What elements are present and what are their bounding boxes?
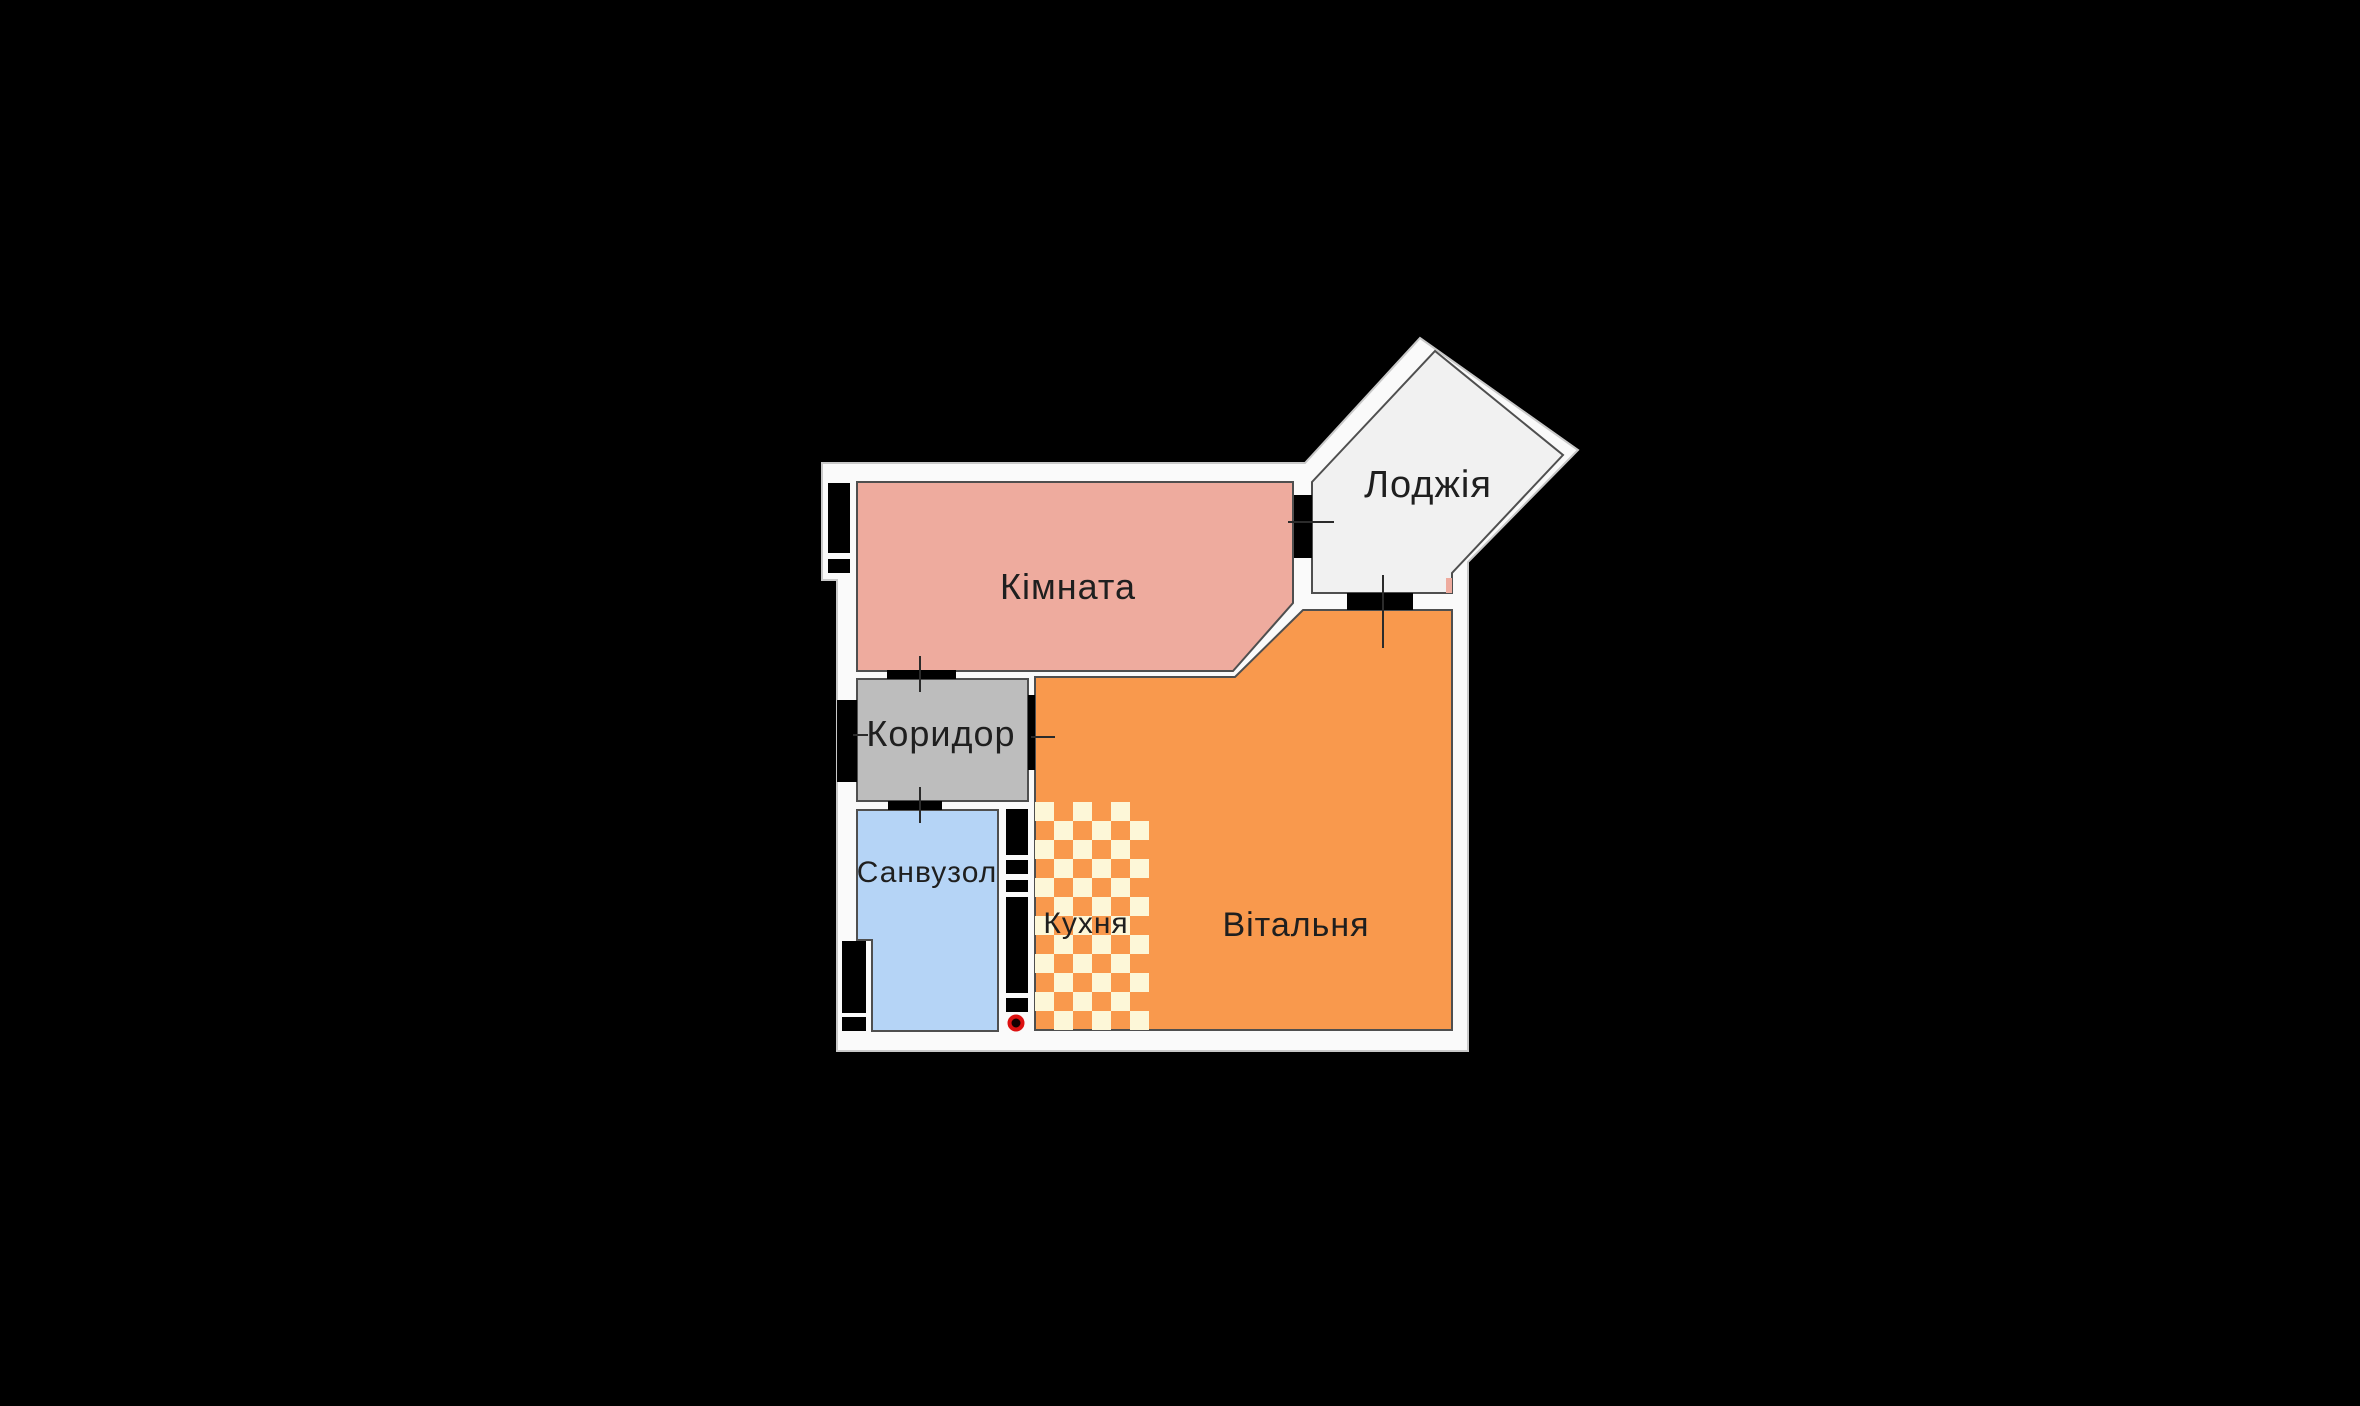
label-korydor: Коридор	[866, 713, 1015, 754]
kitchen-floor-tile	[1035, 878, 1054, 897]
kitchen-floor-tile	[1035, 802, 1054, 821]
kitchen-floor-tile	[1035, 992, 1054, 1011]
shaft-segment-5	[1006, 998, 1028, 1012]
door-loggia-icon	[1347, 593, 1413, 610]
door-kimnata-icon	[887, 670, 956, 679]
kitchen-floor-tile	[1130, 935, 1149, 954]
room-sanvuzol	[857, 810, 998, 1031]
kitchen-floor-tile	[1111, 878, 1130, 897]
floor-plan-svg: Кімната Лоджія Коридор Санвузол Кухня Ві…	[0, 0, 2360, 1406]
shaft-segment-4	[1006, 897, 1028, 993]
shaft-segment-3	[1006, 880, 1028, 892]
window-left-bottom-small-icon	[842, 1017, 866, 1031]
kitchen-floor-tile	[1073, 840, 1092, 859]
kitchen-floor-tile	[1035, 840, 1054, 859]
door-sanvuzol-icon	[888, 801, 942, 810]
label-kukhnia: Кухня	[1043, 907, 1128, 940]
kitchen-floor-tile	[1130, 821, 1149, 840]
kitchen-floor-tile	[1054, 821, 1073, 840]
kitchen-floor-tile	[1092, 1011, 1111, 1030]
drain-marker-icon	[1010, 1017, 1023, 1030]
kitchen-floor-tile	[1130, 859, 1149, 878]
kitchen-floor-tile	[1092, 859, 1111, 878]
kitchen-floor-tile	[1130, 1011, 1149, 1030]
label-vitalnia: Вітальня	[1222, 906, 1369, 944]
label-sanvuzol: Санвузол	[857, 856, 997, 889]
label-loggia: Лоджія	[1364, 464, 1492, 506]
kitchen-floor-tile	[1073, 954, 1092, 973]
kitchen-floor-tile	[1073, 992, 1092, 1011]
entrance-door-icon	[837, 700, 857, 782]
kitchen-floor-tile	[1073, 802, 1092, 821]
kitchen-floor-tile	[1054, 859, 1073, 878]
shaft-segment-2	[1006, 860, 1028, 874]
floor-plan-canvas: Кімната Лоджія Коридор Санвузол Кухня Ві…	[0, 0, 2360, 1406]
window-left-bottom-icon	[842, 941, 866, 1013]
window-kimnata-loggia-icon	[1294, 495, 1312, 558]
label-kimnata: Кімната	[1000, 566, 1136, 607]
kitchen-floor-tile	[1054, 1011, 1073, 1030]
kitchen-floor-tile	[1092, 973, 1111, 992]
kitchen-floor-tile	[1035, 954, 1054, 973]
kitchen-floor-tile	[1111, 802, 1130, 821]
loggia-corner-detail	[1446, 578, 1452, 593]
kitchen-floor-tile	[1130, 897, 1149, 916]
kitchen-floor-tile	[1092, 821, 1111, 840]
shaft-segment-1	[1006, 809, 1028, 855]
kitchen-floor-tile	[1054, 973, 1073, 992]
kitchen-floor-tile	[1130, 973, 1149, 992]
wall-korydor-right-icon	[1028, 695, 1035, 770]
window-left-top-small-icon	[828, 559, 850, 573]
kitchen-floor-tile	[1073, 878, 1092, 897]
kitchen-floor-tile	[1111, 840, 1130, 859]
window-left-top-icon	[828, 483, 850, 553]
kitchen-floor-tile	[1111, 992, 1130, 1011]
kitchen-floor-tile	[1111, 954, 1130, 973]
